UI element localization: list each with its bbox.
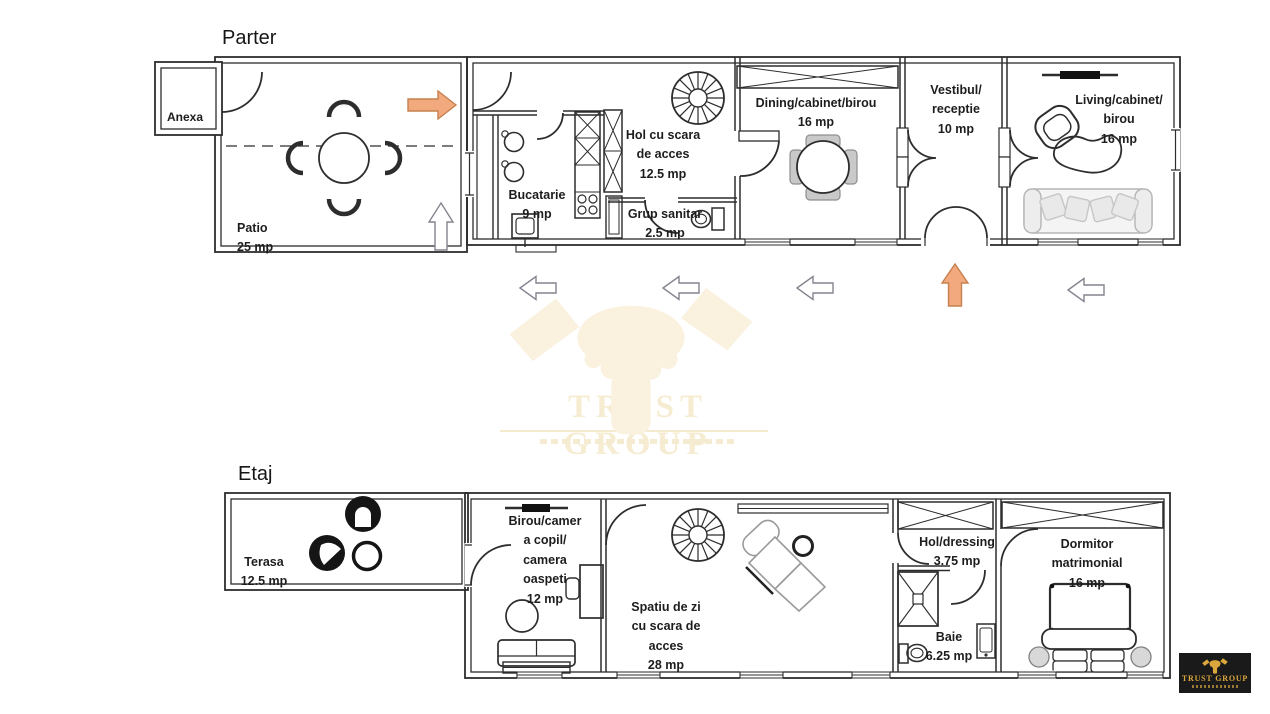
room-spatiu-zi bbox=[672, 504, 888, 611]
handshake-logo-icon bbox=[1200, 658, 1230, 674]
sofa-icon bbox=[1024, 189, 1152, 233]
spiral-staircase-icon bbox=[672, 509, 724, 561]
arrow-up-icon bbox=[429, 203, 453, 250]
double-door-arc bbox=[908, 130, 936, 186]
nightstand-icon bbox=[1131, 647, 1151, 667]
stove-burner-icon bbox=[589, 195, 597, 203]
window bbox=[465, 151, 475, 197]
logo-tagline bbox=[1192, 685, 1238, 688]
room-anexa bbox=[155, 62, 262, 135]
room-vestibul bbox=[897, 57, 990, 247]
desk-chair-icon bbox=[566, 578, 579, 599]
arrow-up-icon bbox=[942, 264, 968, 306]
arrow-left-icon bbox=[663, 277, 699, 300]
door-arc bbox=[951, 570, 985, 604]
door-arc bbox=[473, 72, 511, 110]
floorplan-canvas: TRUST GROUP bbox=[0, 0, 1270, 714]
room-birou-camera bbox=[465, 499, 647, 673]
stove-burner-icon bbox=[578, 195, 586, 203]
toilet-icon bbox=[712, 208, 724, 230]
door-leaf bbox=[739, 131, 779, 141]
door-arc bbox=[645, 200, 678, 233]
door-leaf bbox=[999, 157, 1010, 187]
closet-icon bbox=[898, 502, 1163, 529]
chaise-lounge-icon bbox=[739, 516, 825, 611]
door-arc bbox=[740, 141, 779, 176]
coffee-table-icon bbox=[1054, 136, 1121, 173]
logo-brand-text: TRUST GROUP bbox=[1182, 675, 1248, 683]
terrace-table-icon bbox=[354, 543, 381, 570]
door-arc bbox=[222, 72, 262, 112]
door-leaf bbox=[897, 128, 908, 157]
floor-etaj-drawing bbox=[225, 493, 1170, 680]
arrow-right-icon bbox=[408, 91, 456, 119]
entrance-double-door-arc bbox=[925, 207, 987, 238]
room-bucatarie bbox=[473, 111, 604, 252]
arrow-left-icon bbox=[1068, 279, 1104, 302]
stove-burner-icon bbox=[578, 206, 586, 214]
desk-icon bbox=[580, 565, 603, 618]
door-leaf bbox=[999, 128, 1010, 157]
door-arc bbox=[898, 533, 929, 564]
double-bed-icon bbox=[1029, 584, 1151, 672]
sofa-icon bbox=[498, 640, 575, 673]
direction-arrows-row bbox=[520, 264, 1104, 306]
closet-icon bbox=[737, 66, 898, 88]
dining-table-set bbox=[790, 135, 857, 200]
agency-logo: TRUST GROUP bbox=[1179, 653, 1251, 693]
round-table-icon bbox=[506, 600, 538, 632]
room-terasa bbox=[225, 493, 468, 590]
floor-parter-drawing bbox=[155, 57, 1181, 252]
room-grup-sanitar bbox=[606, 196, 737, 238]
floorplan-svg bbox=[0, 0, 1270, 714]
spiral-staircase-icon bbox=[672, 72, 724, 124]
door-arc bbox=[1001, 529, 1038, 566]
closet-icon bbox=[604, 110, 622, 192]
door-arc bbox=[606, 505, 646, 545]
arrow-left-icon bbox=[797, 277, 833, 300]
arrow-left-icon bbox=[520, 277, 556, 300]
door-arc bbox=[537, 113, 563, 139]
nightstand-icon bbox=[1029, 647, 1049, 667]
door-arc bbox=[471, 545, 511, 585]
door-leaf bbox=[897, 157, 908, 187]
handshake-watermark-icon bbox=[510, 288, 753, 435]
patio-table-set bbox=[288, 102, 400, 214]
double-door-arc bbox=[1010, 130, 1038, 186]
room-living bbox=[999, 57, 1181, 245]
stove-burner-icon bbox=[589, 206, 597, 214]
side-table-icon bbox=[794, 537, 813, 556]
